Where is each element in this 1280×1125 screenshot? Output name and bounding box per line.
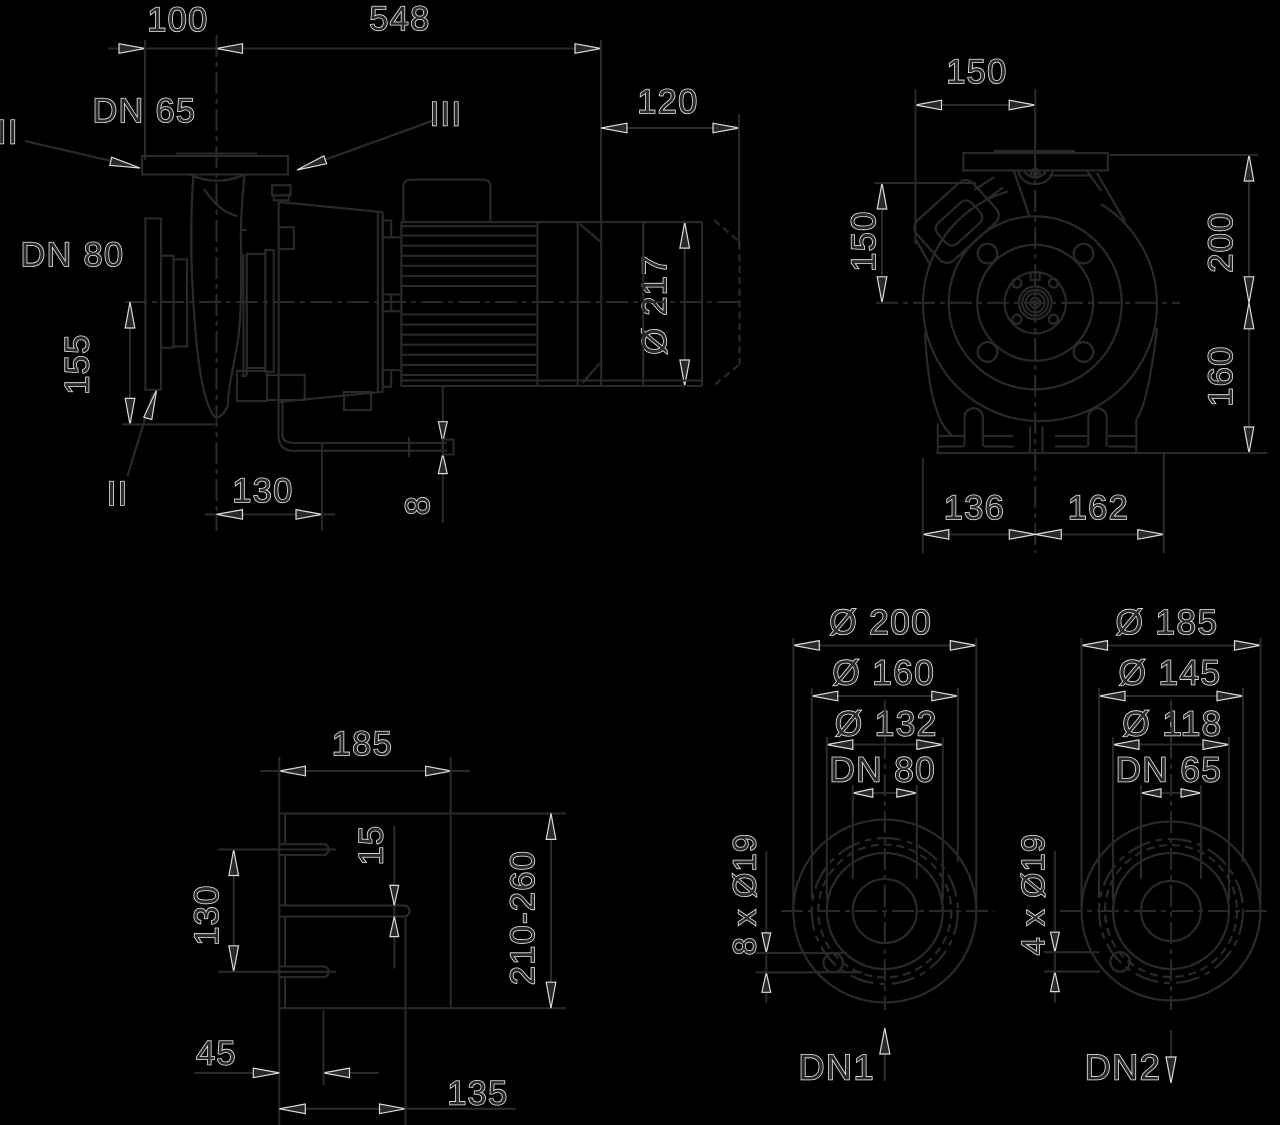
svg-text:DN 80: DN 80 xyxy=(21,236,125,274)
svg-text:150: 150 xyxy=(845,210,883,271)
svg-text:150: 150 xyxy=(946,53,1007,91)
svg-text:8: 8 xyxy=(399,495,437,515)
svg-text:210-260: 210-260 xyxy=(504,850,542,985)
svg-text:185: 185 xyxy=(332,725,393,763)
svg-text:160: 160 xyxy=(1202,345,1240,406)
svg-text:120: 120 xyxy=(637,83,698,121)
svg-text:135: 135 xyxy=(447,1075,508,1113)
svg-text:548: 548 xyxy=(369,0,430,38)
svg-text:DN1: DN1 xyxy=(799,1047,876,1088)
svg-text:162: 162 xyxy=(1068,489,1129,527)
svg-text:DN2: DN2 xyxy=(1085,1047,1162,1088)
svg-text:130: 130 xyxy=(188,884,226,945)
svg-text:136: 136 xyxy=(944,489,1005,527)
svg-text:DN 65: DN 65 xyxy=(93,92,197,130)
svg-text:II: II xyxy=(0,114,19,152)
svg-text:DN 65: DN 65 xyxy=(1116,751,1223,790)
svg-text:Ø 185: Ø 185 xyxy=(1116,603,1219,642)
svg-text:45: 45 xyxy=(196,1035,237,1073)
svg-text:Ø 217: Ø 217 xyxy=(636,254,674,354)
svg-text:II: II xyxy=(107,475,129,513)
svg-text:Ø 200: Ø 200 xyxy=(829,603,932,642)
svg-text:Ø 145: Ø 145 xyxy=(1119,654,1222,693)
svg-text:III: III xyxy=(430,96,463,134)
svg-text:130: 130 xyxy=(232,472,293,510)
svg-text:Ø 160: Ø 160 xyxy=(832,654,935,693)
svg-text:155: 155 xyxy=(59,333,97,394)
svg-text:200: 200 xyxy=(1202,211,1240,272)
svg-text:8 x Ø19: 8 x Ø19 xyxy=(726,833,762,956)
svg-text:4 x Ø19: 4 x Ø19 xyxy=(1015,833,1051,956)
svg-text:100: 100 xyxy=(147,1,208,39)
svg-text:Ø 132: Ø 132 xyxy=(835,705,938,744)
svg-text:15: 15 xyxy=(353,825,391,866)
svg-text:Ø 118: Ø 118 xyxy=(1122,705,1222,744)
svg-text:DN 80: DN 80 xyxy=(829,751,936,790)
